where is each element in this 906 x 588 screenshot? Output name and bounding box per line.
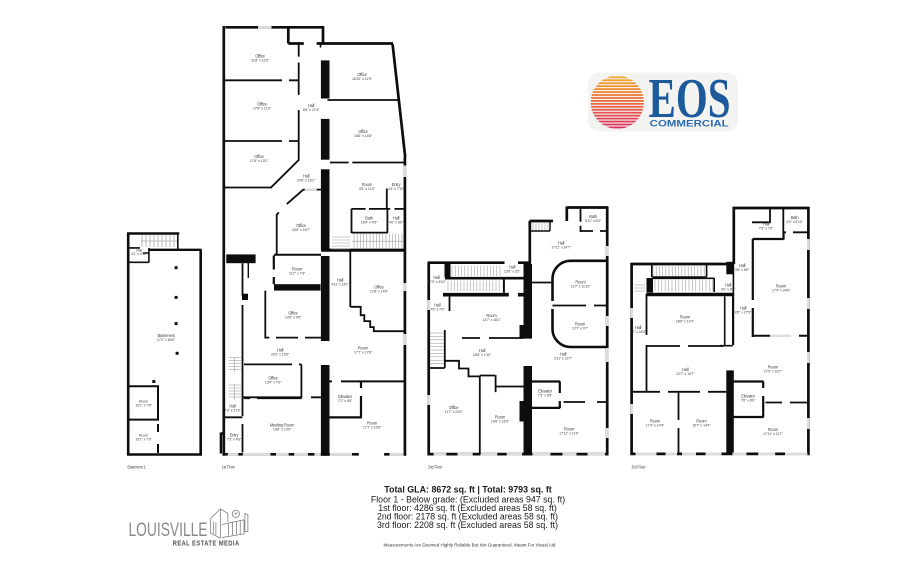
svg-text:3rd floor: 2208 sq. ft (Exclud: 3rd floor: 2208 sq. ft (Excluded areas 5… — [377, 520, 558, 531]
svg-text:Measurements Are Deemed Highly: Measurements Are Deemed Highly Reliable … — [384, 543, 557, 548]
